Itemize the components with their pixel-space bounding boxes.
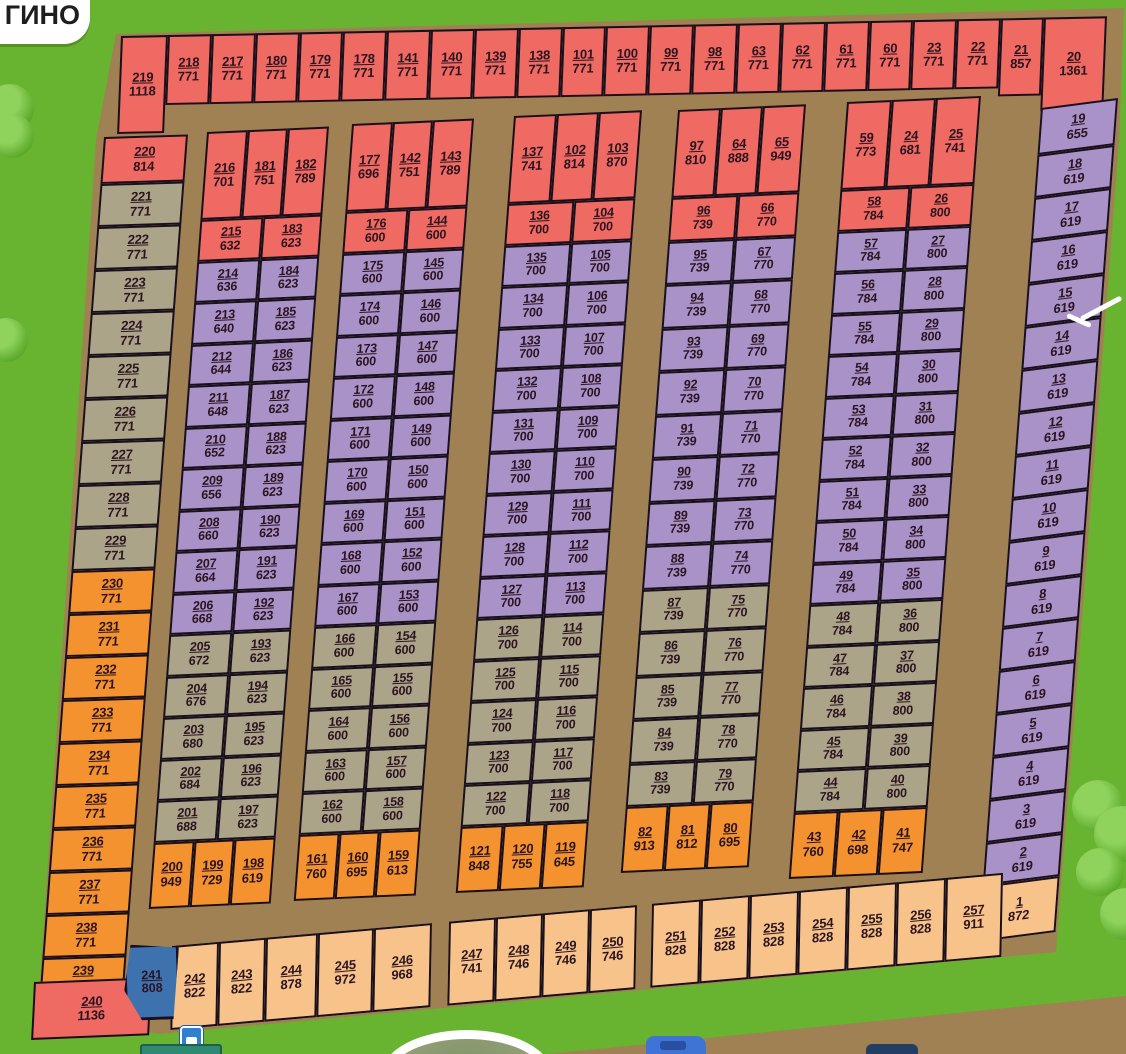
plot-175[interactable]: 175600 <box>339 251 406 295</box>
plot-64[interactable]: 64888 <box>714 106 763 196</box>
plot-256[interactable]: 256828 <box>895 878 946 966</box>
plot-85[interactable]: 85739 <box>632 674 702 720</box>
plot-44[interactable]: 44784 <box>794 768 867 813</box>
plot-223[interactable]: 223771 <box>91 267 178 313</box>
plot-24[interactable]: 24681 <box>885 98 936 188</box>
plot-area: 771 <box>116 376 138 391</box>
plot-78[interactable]: 78770 <box>696 714 761 760</box>
plot-206[interactable]: 206668 <box>169 591 236 635</box>
plot-43[interactable]: 43760 <box>789 810 839 878</box>
plot-126[interactable]: 126700 <box>473 616 543 660</box>
plot-179[interactable]: 179771 <box>297 32 344 103</box>
block-d-pair-row: 9373969770 <box>658 323 789 372</box>
plot-228[interactable]: 228771 <box>75 482 162 528</box>
plot-181[interactable]: 181751 <box>241 128 288 218</box>
plot-73[interactable]: 73770 <box>712 497 777 543</box>
plot-77[interactable]: 77770 <box>699 671 764 717</box>
plot-area: 600 <box>397 602 418 616</box>
plot-area: 700 <box>573 469 594 483</box>
plot-190[interactable]: 190623 <box>239 505 301 549</box>
structure-icon <box>140 1044 222 1054</box>
plot-68[interactable]: 68770 <box>728 279 793 325</box>
plot-197[interactable]: 197623 <box>217 796 279 840</box>
plot-224[interactable]: 224771 <box>88 310 175 356</box>
plot-195[interactable]: 195623 <box>223 713 285 757</box>
plot-139[interactable]: 139771 <box>472 28 519 99</box>
plot-58[interactable]: 58784 <box>837 187 910 232</box>
plot-108[interactable]: 108700 <box>558 364 623 408</box>
plot-161[interactable]: 161760 <box>294 833 340 901</box>
plot-41[interactable]: 41747 <box>878 806 928 874</box>
plot-166[interactable]: 166600 <box>311 624 378 668</box>
plot-255[interactable]: 255828 <box>846 882 897 970</box>
block-c-pair-row: 127700113700 <box>476 572 607 619</box>
plot-252[interactable]: 252828 <box>699 895 750 983</box>
plot-193[interactable]: 193623 <box>230 630 292 674</box>
plot-area: 771 <box>265 68 287 82</box>
block-c-header: 137741102814103870 <box>507 110 642 204</box>
plot-area: 640 <box>213 322 234 336</box>
plot-83[interactable]: 83739 <box>626 761 696 807</box>
plot-151[interactable]: 151600 <box>384 497 446 541</box>
plot-198[interactable]: 198619 <box>230 837 276 905</box>
plot-107[interactable]: 107700 <box>561 323 626 367</box>
plot-area: 739 <box>663 609 684 623</box>
plot-142[interactable]: 142751 <box>386 120 433 210</box>
plot-221[interactable]: 221771 <box>97 181 184 227</box>
plot-210[interactable]: 210652 <box>182 425 249 469</box>
plot-207[interactable]: 207664 <box>172 549 239 593</box>
block-e-pair-row: 5678428800 <box>831 267 968 315</box>
plot-185[interactable]: 185623 <box>255 298 317 342</box>
plot-250[interactable]: 250746 <box>588 905 637 993</box>
plot-number: 238 <box>75 921 97 936</box>
plot-area: 600 <box>416 353 437 367</box>
plot-91[interactable]: 91739 <box>652 413 722 459</box>
plot-117[interactable]: 117700 <box>530 738 595 782</box>
plot-231[interactable]: 231771 <box>65 611 152 657</box>
plot-63[interactable]: 63771 <box>735 23 782 94</box>
block-e-pair-row: 5378431800 <box>822 391 959 439</box>
plot-191[interactable]: 191623 <box>236 547 298 591</box>
plot-area: 784 <box>841 499 862 513</box>
plot-124[interactable]: 124700 <box>467 699 537 743</box>
plot-152[interactable]: 152600 <box>381 539 443 583</box>
plot-129[interactable]: 129700 <box>483 492 553 536</box>
plot-area: 972 <box>334 972 355 988</box>
plot-31[interactable]: 31800 <box>891 391 958 435</box>
plot-225[interactable]: 225771 <box>84 353 171 399</box>
plot-72[interactable]: 72770 <box>715 453 780 499</box>
plot-48[interactable]: 48784 <box>806 602 879 647</box>
plot-45[interactable]: 45784 <box>797 726 870 771</box>
plot-area: 644 <box>210 363 231 377</box>
plot-area: 746 <box>508 956 529 972</box>
block-a-pair-row: 213640185623 <box>191 298 316 345</box>
plot-243[interactable]: 243822 <box>217 938 266 1026</box>
plot-number: 43 <box>807 830 822 845</box>
plot-120[interactable]: 120755 <box>498 823 546 891</box>
plot-90[interactable]: 90739 <box>649 456 719 502</box>
plot-162[interactable]: 162600 <box>299 790 366 834</box>
block-b-pair-row: 169600151600 <box>321 497 446 544</box>
plot-84[interactable]: 84739 <box>629 717 699 763</box>
plot-area: 648 <box>207 405 228 419</box>
plot-area: 771 <box>747 58 769 72</box>
plot-56[interactable]: 56784 <box>831 270 904 315</box>
plot-22[interactable]: 22771 <box>954 18 1001 89</box>
plot-area: 600 <box>358 314 379 328</box>
plot-26[interactable]: 26800 <box>907 184 974 228</box>
plot-150[interactable]: 150600 <box>387 456 449 500</box>
plot-111[interactable]: 111700 <box>549 489 614 533</box>
plot-200[interactable]: 200949 <box>149 841 195 909</box>
plot-154[interactable]: 154600 <box>375 622 437 666</box>
plot-96[interactable]: 96739 <box>668 195 738 241</box>
plot-148[interactable]: 148600 <box>393 373 455 417</box>
plot-115[interactable]: 115700 <box>537 655 602 699</box>
plot-204[interactable]: 204676 <box>163 674 230 718</box>
plot-137[interactable]: 137741 <box>507 114 556 204</box>
plot-57[interactable]: 57784 <box>834 228 907 273</box>
plot-116[interactable]: 116700 <box>533 696 598 740</box>
plot-37[interactable]: 37800 <box>873 640 940 684</box>
plot-132[interactable]: 132700 <box>492 367 562 411</box>
plot-69[interactable]: 69770 <box>725 323 790 369</box>
plot-189[interactable]: 189623 <box>242 464 304 508</box>
plot-area: 784 <box>844 458 865 472</box>
plot-138[interactable]: 138771 <box>516 27 563 98</box>
plot-98[interactable]: 98771 <box>691 24 738 95</box>
plot-143[interactable]: 143789 <box>427 119 474 209</box>
plot-122[interactable]: 122700 <box>461 782 531 826</box>
plot-area: 600 <box>330 687 351 701</box>
plot-110[interactable]: 110700 <box>552 447 617 491</box>
plot-92[interactable]: 92739 <box>655 369 725 415</box>
plot-52[interactable]: 52784 <box>819 436 892 481</box>
plot-114[interactable]: 114700 <box>540 613 605 657</box>
plot-53[interactable]: 53784 <box>822 394 895 439</box>
plot-199[interactable]: 199729 <box>189 839 235 907</box>
plot-area: 741 <box>944 141 966 156</box>
plot-86[interactable]: 86739 <box>636 630 706 676</box>
plot-65[interactable]: 65949 <box>757 104 806 194</box>
plot-131[interactable]: 131700 <box>489 409 559 453</box>
plot-170[interactable]: 170600 <box>324 458 391 502</box>
plot-area: 771 <box>704 59 726 73</box>
plot-176[interactable]: 176600 <box>342 209 409 253</box>
plot-257[interactable]: 257911 <box>944 873 1003 962</box>
plot-174[interactable]: 174600 <box>336 292 403 336</box>
plot-173[interactable]: 173600 <box>333 334 400 378</box>
plot-74[interactable]: 74770 <box>709 540 774 586</box>
plot-196[interactable]: 196623 <box>220 754 282 798</box>
plot-212[interactable]: 212644 <box>188 342 255 386</box>
plot-254[interactable]: 254828 <box>797 887 848 975</box>
plot-218[interactable]: 218771 <box>165 34 212 105</box>
plot-147[interactable]: 147600 <box>396 331 458 375</box>
plot-20[interactable]: 201361 <box>1040 16 1107 111</box>
plot-29[interactable]: 29800 <box>898 308 965 352</box>
plot-136[interactable]: 136700 <box>504 201 574 245</box>
plot-156[interactable]: 156600 <box>368 705 430 749</box>
plot-134[interactable]: 134700 <box>498 284 568 328</box>
plot-180[interactable]: 180771 <box>253 32 300 103</box>
plot-36[interactable]: 36800 <box>876 599 943 643</box>
plot-62[interactable]: 62771 <box>779 22 826 93</box>
plot-202[interactable]: 202684 <box>157 757 224 801</box>
plot-area: 700 <box>506 513 527 527</box>
plot-188[interactable]: 188623 <box>245 422 307 466</box>
plot-235[interactable]: 235771 <box>52 783 139 829</box>
plot-233[interactable]: 233771 <box>59 697 146 743</box>
plot-211[interactable]: 211648 <box>185 383 252 427</box>
plot-186[interactable]: 186623 <box>251 339 313 383</box>
plot-248[interactable]: 248746 <box>494 913 543 1001</box>
plot-35[interactable]: 35800 <box>879 557 946 601</box>
plot-165[interactable]: 165600 <box>308 666 375 710</box>
plot-168[interactable]: 168600 <box>317 541 384 585</box>
block-e-pair-row: 4878436800 <box>806 599 943 647</box>
plot-103[interactable]: 103870 <box>593 110 642 200</box>
plot-46[interactable]: 46784 <box>800 685 873 730</box>
plot-183[interactable]: 183623 <box>261 215 323 259</box>
plot-27[interactable]: 27800 <box>904 225 971 269</box>
plot-203[interactable]: 203680 <box>160 715 227 759</box>
plot-184[interactable]: 184623 <box>258 256 320 300</box>
plot-93[interactable]: 93739 <box>658 326 728 372</box>
plot-21[interactable]: 21857 <box>998 18 1044 97</box>
plot-30[interactable]: 30800 <box>895 350 962 394</box>
plot-163[interactable]: 163600 <box>302 749 369 793</box>
plot-39[interactable]: 39800 <box>866 723 933 767</box>
plot-55[interactable]: 55784 <box>828 311 901 356</box>
plot-54[interactable]: 54784 <box>825 353 898 398</box>
plot-area: 700 <box>494 679 515 693</box>
plot-area: 600 <box>355 355 376 369</box>
plot-144[interactable]: 144600 <box>406 207 468 251</box>
plot-164[interactable]: 164600 <box>305 707 372 751</box>
plot-226[interactable]: 226771 <box>81 396 168 442</box>
plot-70[interactable]: 70770 <box>722 366 787 412</box>
plot-61[interactable]: 61771 <box>823 21 870 92</box>
plot-251[interactable]: 251828 <box>650 899 701 987</box>
block-b-pair-row: 164600156600 <box>305 705 430 752</box>
plot-38[interactable]: 38800 <box>870 682 937 726</box>
plot-66[interactable]: 66770 <box>735 192 800 238</box>
plot-222[interactable]: 222771 <box>94 224 181 270</box>
plot-82[interactable]: 82913 <box>621 805 669 873</box>
plot-230[interactable]: 230771 <box>68 568 155 614</box>
plot-area: 600 <box>425 228 446 242</box>
plot-158[interactable]: 158600 <box>362 788 424 832</box>
plot-216[interactable]: 216701 <box>200 130 247 220</box>
plot-217[interactable]: 217771 <box>209 33 256 104</box>
plot-187[interactable]: 187623 <box>248 381 310 425</box>
plot-area: 623 <box>259 527 280 541</box>
plot-79[interactable]: 79770 <box>692 758 757 804</box>
plot-40[interactable]: 40800 <box>863 765 930 809</box>
plot-area: 789 <box>439 163 461 178</box>
plot-75[interactable]: 75770 <box>705 584 770 630</box>
plot-146[interactable]: 146600 <box>400 290 462 334</box>
plot-59[interactable]: 59773 <box>840 100 891 190</box>
plot-159[interactable]: 159613 <box>375 829 421 897</box>
plot-area: 700 <box>561 635 582 649</box>
plot-area: 656 <box>201 488 222 502</box>
plot-76[interactable]: 76770 <box>702 627 767 673</box>
plot-number: 223 <box>124 276 146 291</box>
plot-153[interactable]: 153600 <box>378 580 440 624</box>
plot-area: 784 <box>853 333 874 347</box>
plot-34[interactable]: 34800 <box>882 516 949 560</box>
plot-99[interactable]: 99771 <box>647 25 694 96</box>
plot-119[interactable]: 119645 <box>541 821 589 889</box>
plot-140[interactable]: 140771 <box>428 29 475 100</box>
plot-50[interactable]: 50784 <box>812 519 885 564</box>
plot-area: 800 <box>902 579 923 593</box>
plot-area: 668 <box>191 612 212 626</box>
block-c-pair-row: 126700114700 <box>473 613 604 660</box>
plot-102[interactable]: 102814 <box>550 112 599 202</box>
plot-118[interactable]: 118700 <box>527 779 592 823</box>
plot-67[interactable]: 67770 <box>731 236 796 282</box>
plot-237[interactable]: 237771 <box>46 869 133 915</box>
plot-101[interactable]: 101771 <box>560 26 607 97</box>
plot-232[interactable]: 232771 <box>62 654 149 700</box>
plot-area: 600 <box>327 729 348 743</box>
plot-244[interactable]: 244878 <box>264 933 318 1022</box>
plot-155[interactable]: 155600 <box>371 663 433 707</box>
plot-160[interactable]: 160695 <box>334 831 380 899</box>
plot-182[interactable]: 182789 <box>282 127 329 217</box>
plot-247[interactable]: 247741 <box>447 917 496 1005</box>
block-b-pair-row: 166600154600 <box>311 622 436 669</box>
plot-100[interactable]: 100771 <box>604 25 651 96</box>
block-a-pair-row: 206668192623 <box>169 588 294 635</box>
plot-area: 739 <box>659 653 680 667</box>
plot-area: 700 <box>509 472 530 486</box>
plot-number: 233 <box>92 706 114 721</box>
plot-106[interactable]: 106700 <box>565 281 630 325</box>
plot-89[interactable]: 89739 <box>645 500 715 546</box>
block-b-pair-row: 175600145600 <box>339 248 464 295</box>
plot-128[interactable]: 128700 <box>479 533 549 577</box>
plot-area: 770 <box>749 302 770 316</box>
plot-71[interactable]: 71770 <box>718 410 783 456</box>
plot-113[interactable]: 113700 <box>543 572 608 616</box>
plot-209[interactable]: 209656 <box>179 466 246 510</box>
plot-33[interactable]: 33800 <box>885 474 952 518</box>
plot-205[interactable]: 205672 <box>166 632 233 676</box>
plot-109[interactable]: 109700 <box>555 406 620 450</box>
plot-178[interactable]: 178771 <box>341 31 388 102</box>
plot-169[interactable]: 169600 <box>321 500 388 544</box>
plot-194[interactable]: 194623 <box>226 671 288 715</box>
plot-123[interactable]: 123700 <box>464 741 534 785</box>
block-c-pair-row: 133700107700 <box>495 323 626 370</box>
plot-213[interactable]: 213640 <box>191 300 258 344</box>
plot-area: 812 <box>676 837 698 852</box>
plot-95[interactable]: 95739 <box>665 239 735 285</box>
plot-238[interactable]: 238771 <box>42 912 129 958</box>
plot-49[interactable]: 49784 <box>809 560 882 605</box>
plot-97[interactable]: 97810 <box>671 108 720 198</box>
block-a-pair-row: 209656189623 <box>179 464 304 511</box>
plot-214[interactable]: 214636 <box>194 259 261 303</box>
plot-245[interactable]: 245972 <box>316 928 374 1017</box>
plot-141[interactable]: 141771 <box>384 30 431 101</box>
plot-87[interactable]: 87739 <box>639 587 709 633</box>
plot-23[interactable]: 23771 <box>911 19 958 90</box>
plot-171[interactable]: 171600 <box>327 417 394 461</box>
plot-249[interactable]: 249746 <box>541 909 590 997</box>
plot-94[interactable]: 94739 <box>662 282 732 328</box>
plot-area: 771 <box>78 892 100 907</box>
plot-42[interactable]: 42698 <box>833 808 883 876</box>
plot-135[interactable]: 135700 <box>501 243 571 287</box>
plot-60[interactable]: 60771 <box>867 20 914 91</box>
plot-192[interactable]: 192623 <box>233 588 295 632</box>
plot-112[interactable]: 112700 <box>546 530 611 574</box>
plot-229[interactable]: 229771 <box>71 525 158 571</box>
block-e-pair-row: 5178433800 <box>816 474 953 522</box>
plot-area: 660 <box>198 529 219 543</box>
block-a-pair-row: 207664191623 <box>172 547 297 594</box>
plot-227[interactable]: 227771 <box>78 439 165 485</box>
plot-area: 888 <box>727 151 749 166</box>
plot-80[interactable]: 80695 <box>706 801 754 869</box>
plot-51[interactable]: 51784 <box>816 477 889 522</box>
plot-area: 700 <box>551 759 572 773</box>
plot-25[interactable]: 25741 <box>930 96 981 186</box>
plot-149[interactable]: 149600 <box>390 414 452 458</box>
plot-177[interactable]: 177696 <box>345 122 392 212</box>
plot-area: 623 <box>256 568 277 582</box>
plot-47[interactable]: 47784 <box>803 643 876 688</box>
plot-area: 623 <box>262 485 283 499</box>
plot-133[interactable]: 133700 <box>495 326 565 370</box>
plot-234[interactable]: 234771 <box>55 740 142 786</box>
plot-246[interactable]: 246968 <box>372 923 432 1012</box>
plot-104[interactable]: 104700 <box>571 198 636 242</box>
plot-236[interactable]: 236771 <box>49 826 136 872</box>
plot-81[interactable]: 81812 <box>663 803 711 871</box>
plot-32[interactable]: 32800 <box>888 433 955 477</box>
plot-127[interactable]: 127700 <box>476 575 546 619</box>
plot-130[interactable]: 130700 <box>486 450 556 494</box>
plot-105[interactable]: 105700 <box>568 240 633 284</box>
plot-145[interactable]: 145600 <box>403 248 465 292</box>
plot-125[interactable]: 125700 <box>470 658 540 702</box>
plot-167[interactable]: 167600 <box>314 583 381 627</box>
plot-220[interactable]: 220814 <box>100 134 188 184</box>
plot-157[interactable]: 157600 <box>365 746 427 790</box>
plot-area: 619 <box>1047 385 1069 402</box>
plot-121[interactable]: 121848 <box>456 825 504 893</box>
plot-172[interactable]: 172600 <box>330 375 397 419</box>
plot-219[interactable]: 2191118 <box>117 35 168 134</box>
plot-area: 739 <box>679 392 700 406</box>
plot-area: 600 <box>336 604 357 618</box>
plot-201[interactable]: 201688 <box>154 798 221 842</box>
plot-253[interactable]: 253828 <box>748 891 799 979</box>
plot-28[interactable]: 28800 <box>901 267 968 311</box>
plot-88[interactable]: 88739 <box>642 543 712 589</box>
plot-area: 771 <box>791 57 813 71</box>
plot-208[interactable]: 208660 <box>176 508 243 552</box>
plot-215[interactable]: 215632 <box>197 217 264 261</box>
